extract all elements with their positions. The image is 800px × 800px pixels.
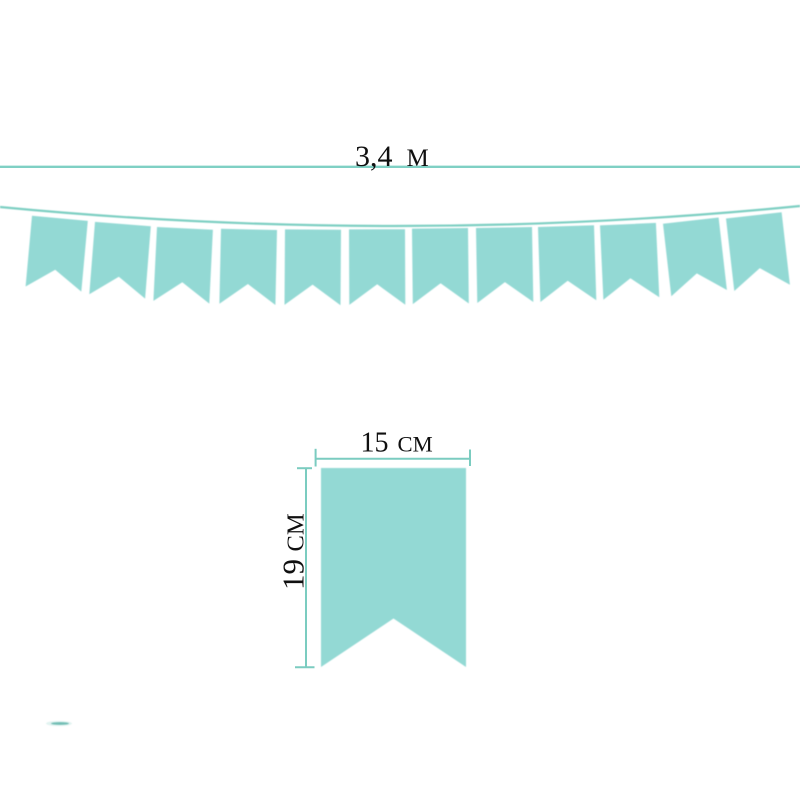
svg-text:М: М	[407, 145, 429, 172]
svg-text:3,4: 3,4	[355, 140, 393, 173]
svg-text:СМ: СМ	[283, 513, 310, 551]
svg-text:СМ: СМ	[398, 432, 433, 457]
svg-text:15: 15	[361, 428, 389, 459]
svg-text:19: 19	[276, 559, 311, 590]
